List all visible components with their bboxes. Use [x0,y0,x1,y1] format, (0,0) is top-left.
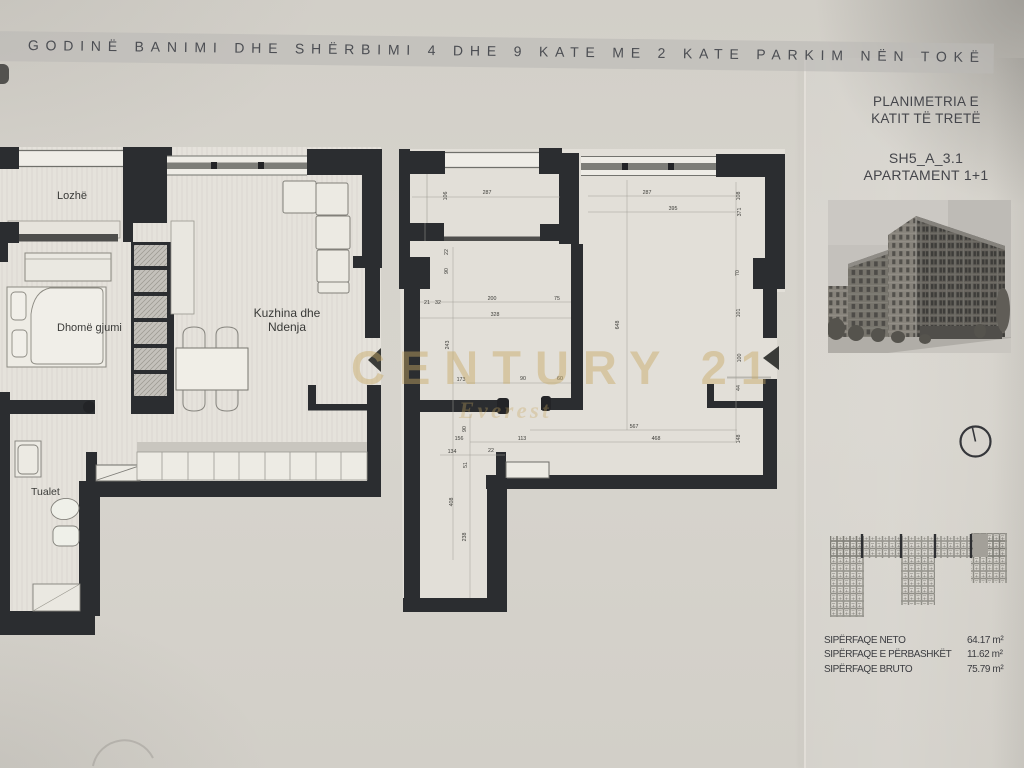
svg-text:134: 134 [448,449,457,455]
svg-text:648: 648 [615,321,621,330]
svg-text:287: 287 [483,190,492,196]
svg-text:106: 106 [443,192,449,201]
svg-text:408: 408 [449,498,455,507]
svg-text:Ndenja: Ndenja [268,320,306,334]
svg-text:21: 21 [424,300,430,306]
svg-text:Kuzhina dhe: Kuzhina dhe [254,306,321,320]
svg-text:328: 328 [491,312,500,318]
svg-text:Tualet: Tualet [31,486,60,498]
svg-text:22: 22 [488,448,494,454]
svg-text:22: 22 [444,249,450,255]
svg-text:371: 371 [737,208,743,217]
svg-text:113: 113 [518,436,526,442]
svg-text:395: 395 [669,206,678,212]
svg-text:32: 32 [435,300,441,306]
svg-text:90: 90 [462,426,468,432]
svg-text:Dhomë gjumi: Dhomë gjumi [57,322,122,334]
svg-text:75: 75 [554,296,560,302]
svg-text:567: 567 [630,424,639,430]
svg-text:70: 70 [735,270,741,276]
svg-text:101: 101 [736,309,742,318]
svg-text:156: 156 [455,436,464,442]
svg-text:90: 90 [444,268,450,274]
svg-text:Lozhë: Lozhë [57,190,87,202]
svg-text:51: 51 [463,462,469,468]
svg-text:468: 468 [652,436,661,442]
svg-text:108: 108 [736,192,742,201]
svg-text:238: 238 [462,533,468,542]
svg-text:200: 200 [488,296,497,302]
svg-text:148: 148 [736,435,742,444]
svg-text:287: 287 [643,190,652,196]
